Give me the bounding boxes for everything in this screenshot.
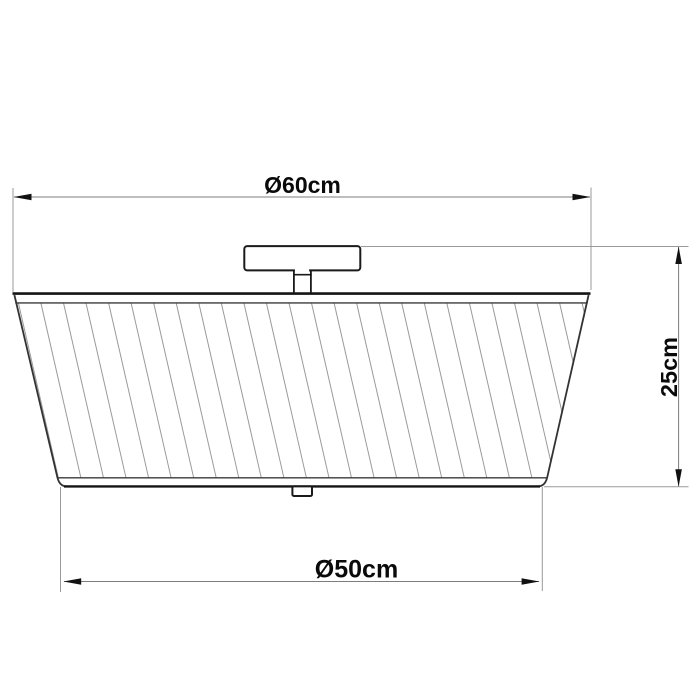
svg-text:Ø60cm: Ø60cm	[264, 172, 341, 198]
svg-text:25cm: 25cm	[656, 337, 682, 397]
svg-text:Ø50cm: Ø50cm	[315, 556, 398, 584]
